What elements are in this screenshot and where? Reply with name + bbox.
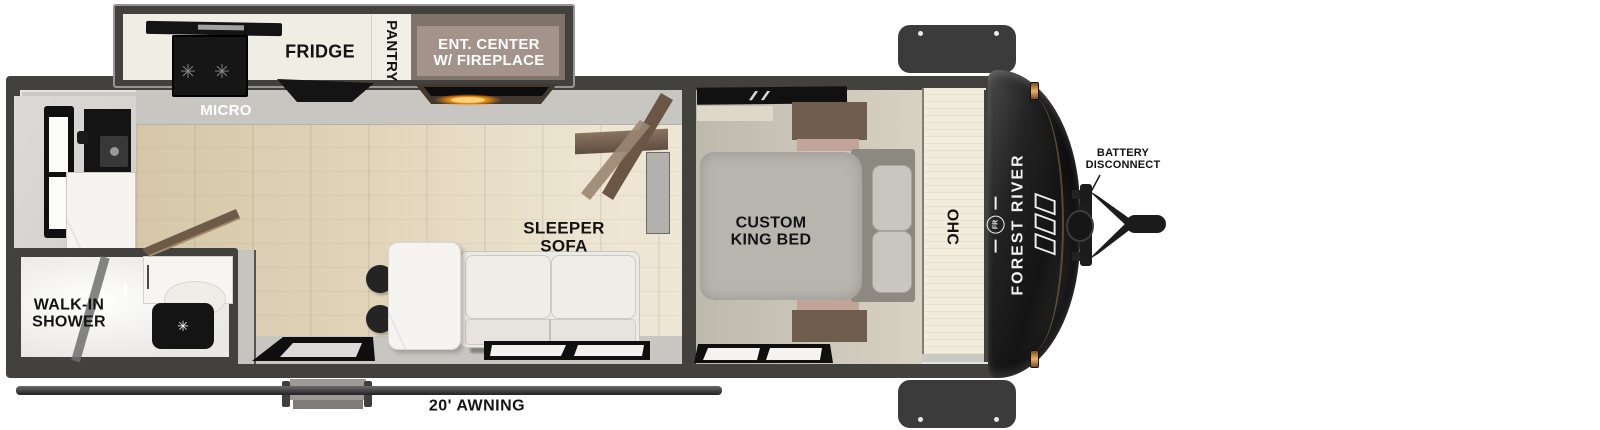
hitch-crossmember [1080,184,1092,266]
sleeper-sofa [459,251,640,348]
brand-name: FOREST RIVER [1010,153,1028,295]
sofa-cushion [465,255,551,319]
brand-logo-row: FR [987,196,1005,252]
vent-slit [749,91,758,100]
sofa-cushion [551,255,636,319]
label-king-bed: CUSTOM KING BED [731,215,812,250]
battery-leader-line [1085,175,1100,203]
bath-counter [66,172,136,256]
brand-dash [995,239,997,252]
dinette-table [388,242,461,350]
label-ohc: OHC [943,209,960,245]
pad-screw-icon [918,31,923,36]
label-awning: 20' AWNING [429,397,525,414]
pillow [872,231,912,293]
bedroom-divider-wall [682,90,696,364]
label-battery-disconnect: BATTERY DISCONNECT [1086,148,1161,172]
label-pantry: PANTRY [383,20,399,82]
faucet-icon [77,131,88,144]
label-sleeper-sofa: SLEEPER SOFA [523,220,604,257]
sofa-seam [549,319,551,343]
burner-icon: ✳ [180,63,196,82]
label-micro: MICRO [200,103,252,119]
awning-rail [16,386,722,395]
front-pad-bottom [898,380,1016,428]
forest-river-logo-icon: FR [987,215,1005,233]
label-ent-center: ENT. CENTER W/ FIREPLACE [433,37,544,69]
sink-drain-icon [110,147,119,156]
pillow [872,165,912,231]
floorplan-canvas: ✳ ✳ [0,0,1600,430]
brand-stripes-icon [1035,197,1056,252]
vent-slit [761,91,770,100]
nightstand-bottom [792,310,867,342]
pad-screw-icon [918,417,923,422]
toilet: ✳ [152,303,214,349]
pad-screw-icon [994,31,999,36]
cooktop-stove: ✳ ✳ [172,35,248,97]
label-walk-in-shower: WALK-IN SHOWER [32,297,106,332]
nightstand-top-accent [797,139,859,151]
hitch-coupler [1126,215,1166,233]
burner-icon: ✳ [214,63,230,82]
front-pad-top [898,25,1016,73]
hitch-a-frame-bar [1088,190,1140,231]
bath-partition-wall [236,250,256,364]
brand-rotated: FR FOREST RIVER [987,153,1056,295]
window-pane [49,117,68,172]
brand-block: FR FOREST RIVER [988,70,1080,378]
nightstand-top [792,102,867,140]
bath-vanity-sink [84,109,131,174]
hitch-a-frame-bar [1088,217,1140,260]
shower-door-handle-icon [124,284,127,296]
label-fridge: FRIDGE [285,42,355,61]
range-hood-vent [198,25,244,31]
pad-screw-icon [994,417,999,422]
bedroom-head-cabinet [697,106,773,121]
brand-dash [995,196,997,209]
bedroom-wall-stub [646,152,670,234]
entry-step-lower [293,400,363,409]
cabinet-handle-icon [147,265,149,289]
flush-icon: ✳ [177,318,189,335]
